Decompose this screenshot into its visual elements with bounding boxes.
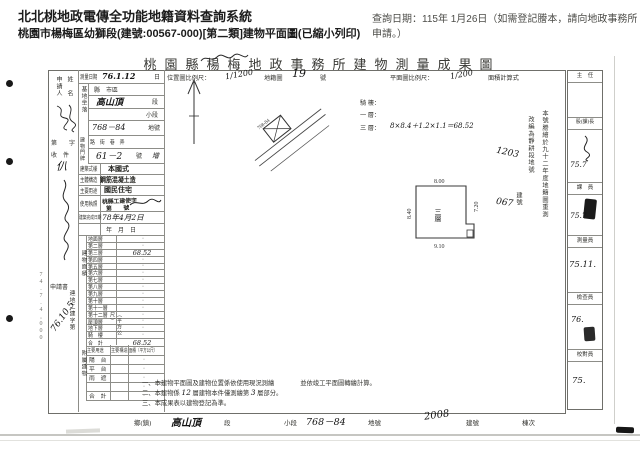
note-2-text-c: 層部分。 — [257, 390, 282, 397]
completion-date-label: 建築完成日期 — [79, 214, 101, 221]
note-1-left: 一、本建物平面圖及建物位置係依使用現況測繪 — [142, 380, 274, 387]
scan-ink-artifact — [616, 427, 634, 434]
annex-value: · — [132, 366, 156, 372]
approval-sign: 76. — [571, 315, 584, 324]
plan-dim-bottom: 9.10 — [434, 244, 445, 250]
approval-title: 測量員 — [568, 236, 602, 248]
footer-subsection-label: 小段 — [284, 417, 297, 427]
approval-sign: 75. — [572, 376, 586, 386]
section-value: 高山頂 — [96, 95, 123, 108]
note-2-hw-floor: 3 — [251, 388, 256, 397]
third-floor-line-label: 三 層： — [360, 123, 380, 132]
use-label: 主要用途 — [80, 186, 97, 195]
floor-value: · — [130, 298, 156, 304]
floor-value: · — [130, 284, 156, 290]
approval-title: 股(課)長 — [568, 118, 602, 130]
blank-date-row: 年 月 日 — [106, 225, 136, 234]
lot-number-unit: 地號 — [148, 123, 160, 132]
approval-sign-cell: 75. — [568, 362, 602, 409]
remeasure-note-col1: 本號謄繪於九十二年度地籍圖重測 — [540, 110, 549, 242]
area-calc-label: 面積計算式 — [488, 73, 519, 82]
approval-sign: 75.7 — [570, 211, 587, 220]
floor-value: · — [130, 325, 156, 331]
plan-scale-label: 平面圖比例尺： — [390, 73, 433, 82]
floor-value: · — [130, 291, 156, 297]
first-floor-line-label: 一 層： — [360, 110, 380, 119]
note-2-text-b: 層建物本件僅測繪第 — [192, 390, 249, 397]
approval-title: 課 員 — [568, 183, 602, 195]
sketch-lot-number: 768-84 — [257, 118, 272, 131]
plan-dim-top: 8.00 — [434, 179, 445, 185]
table-row: 測量日期 76.1.12 日 — [78, 70, 164, 84]
footer-unit-label: 棟次 — [522, 417, 535, 427]
note-2: 二、本建物係 12 層建物本件僅測繪第 3 層部分。 — [142, 388, 282, 397]
system-title: 北北桃地政電傳全功能地籍資料查詢系統 — [18, 6, 252, 25]
ink-stamp-blob — [584, 327, 596, 342]
plan-dim-left: 8.40 — [407, 209, 413, 220]
plan-floor-label: 三層 — [434, 208, 442, 223]
annex-total-label: 合 計 — [89, 391, 106, 400]
scan-bottom-line — [0, 434, 640, 436]
subsection-label: 小段 — [146, 110, 158, 119]
survey-date-unit: 日 — [154, 72, 160, 81]
footer-building-no-label: 建號 — [466, 417, 479, 427]
door-extra-hw: 增 — [152, 151, 159, 161]
note-3: 三、本成果表以建物登記為準。 — [142, 398, 230, 407]
floor-value: · — [130, 305, 156, 311]
document-line: 桃園市楊梅區幼獅段(建號:00567-000)[第二類]建物平面圖(已縮小列印) — [18, 25, 360, 41]
note-1-right: 並依竣工平面圖轉繪計算。 — [300, 380, 376, 387]
approval-title: 檢查員 — [568, 293, 602, 305]
note-1: 一、本建物平面圖及建物位置係依使用現況測繪並依竣工平面圖轉繪計算。 — [142, 378, 376, 387]
punch-hole — [6, 80, 13, 87]
punch-hole — [6, 158, 13, 165]
floor-value: · — [130, 277, 156, 283]
application-form-label: 申請書 — [50, 282, 68, 291]
floor-value: · — [130, 270, 156, 276]
floor-plan: 8.00 9.10 8.40 7.20 三層 — [404, 174, 496, 258]
floor-unit-note: （平方公尺） — [108, 312, 122, 344]
structure-value: 鋼筋混凝土造 — [100, 175, 136, 185]
remeasure-note-col3: 建號 — [514, 192, 523, 222]
cadastral-map-no: 19 — [292, 67, 306, 80]
cadastral-map-unit: 號 — [320, 73, 326, 82]
print-batch-note: 74.7.4,000 — [38, 272, 44, 352]
door-number-unit: 號 — [136, 151, 142, 160]
footer-section-value: 高山頂 — [171, 414, 201, 429]
approval-title: 校對員 — [568, 350, 602, 362]
handwritten-scribble — [53, 102, 77, 134]
approval-strip: 主 任 股(課)長 75.7 課 員 75.7 測量員 75.11. 檢查員 7… — [567, 70, 603, 410]
annex-header-structure: 主要構造 — [111, 347, 128, 354]
section-unit: 段 — [152, 97, 158, 106]
table-row: 768－84 地號 — [88, 120, 164, 136]
floor-value: · — [130, 236, 156, 242]
floor-value: · — [130, 332, 156, 338]
use-value: 國民住宅 — [104, 185, 132, 195]
table-row: 使用執照 桃縣工建使字 第 號 — [78, 195, 164, 212]
approval-sign: 75.7 — [570, 160, 587, 169]
approval-sign-cell: 75.7 — [568, 130, 602, 183]
door-plate-label: 建物門牌 — [79, 137, 86, 163]
footer-section-label: 段 — [224, 417, 231, 427]
cadastral-map-label: 地籍圖 — [264, 73, 283, 82]
receipt-no-label: 第 字 — [51, 138, 75, 147]
annex-name: 陽 台 — [89, 355, 106, 364]
annex-value: · — [132, 357, 156, 363]
footer-lot-value: 768－84 — [306, 414, 346, 428]
survey-date-label: 測量日期 — [80, 72, 97, 81]
license-label: 使用執照 — [80, 199, 97, 208]
door-number-value: 61－2 — [96, 149, 122, 162]
remeasure-note-col2: 改編為靜耕段地號 — [526, 116, 535, 228]
scan-page-edge — [614, 56, 615, 424]
approval-sign: 75.11. — [569, 260, 596, 270]
approval-sign-cell: 76. — [568, 305, 602, 350]
completion-date-value: 78年4月2日 — [102, 212, 144, 223]
handwritten-column-scribble — [56, 178, 72, 262]
door-columns: 路 街 巷 弄 — [90, 137, 125, 146]
punch-hole — [6, 315, 13, 322]
note-2-text-a: 二、本建物係 — [142, 390, 180, 397]
lot-number-value: 768－84 — [92, 122, 125, 133]
query-date: 查詢日期：115年 1月26日（如需登記謄本，請向地政事務所申請。） — [372, 10, 640, 40]
annex-name: 平 台 — [89, 364, 106, 373]
county-field: 縣 市區 — [94, 85, 118, 94]
license-hw-scribble — [128, 197, 162, 209]
north-arrow — [184, 72, 204, 147]
survey-date-value: 76.1.12 — [102, 71, 135, 81]
receipt-hw-value: 仈 — [56, 158, 67, 174]
scanned-document: 桃園縣楊梅地政事務所建物測量成果圖 申請人 姓 名 第 字 收 件 仈 申請書 … — [38, 50, 618, 438]
note-2-hw-floors: 12 — [181, 388, 191, 397]
approval-sign-cell — [568, 83, 602, 118]
approval-title: 主 任 — [568, 71, 602, 83]
table-row: 高山頂 段 — [88, 95, 164, 109]
footer-building-no-value: 2008 — [423, 408, 450, 422]
style-value: 本國式 — [108, 164, 129, 174]
table-row: 路 街 巷 弄 — [88, 135, 164, 149]
approval-sign-cell: 75.7 — [568, 195, 602, 236]
divider — [164, 70, 165, 412]
signature-scribble — [576, 134, 594, 162]
approval-sign-cell: 75.11. — [568, 248, 602, 293]
location-sketch: 768-84 — [243, 105, 343, 177]
annex-header-area: 面積（平方公尺） — [129, 347, 157, 354]
footer-town-label: 鄉(鎮) — [134, 417, 151, 427]
area-formula-hw: 8×8.4＋1.2×1.1＝68.52 — [390, 121, 474, 131]
annex-header-use: 主要用途 — [87, 347, 104, 354]
table-row: 61－2 號 增 — [88, 148, 164, 164]
floor-value: · — [130, 257, 156, 263]
qilou-line-label: 騎 樓： — [360, 98, 380, 107]
structure-label: 主體構造 — [80, 175, 97, 184]
annex-name: 雨 遮 — [89, 373, 106, 382]
scan-bottom-line-faint — [0, 440, 640, 441]
floor-value: · — [130, 312, 156, 318]
plan-dim-right: 7.20 — [474, 202, 480, 213]
handwritten-annotation — [198, 51, 250, 65]
style-label: 建築式樣 — [80, 164, 97, 173]
footer-lot-label: 地號 — [368, 417, 381, 427]
